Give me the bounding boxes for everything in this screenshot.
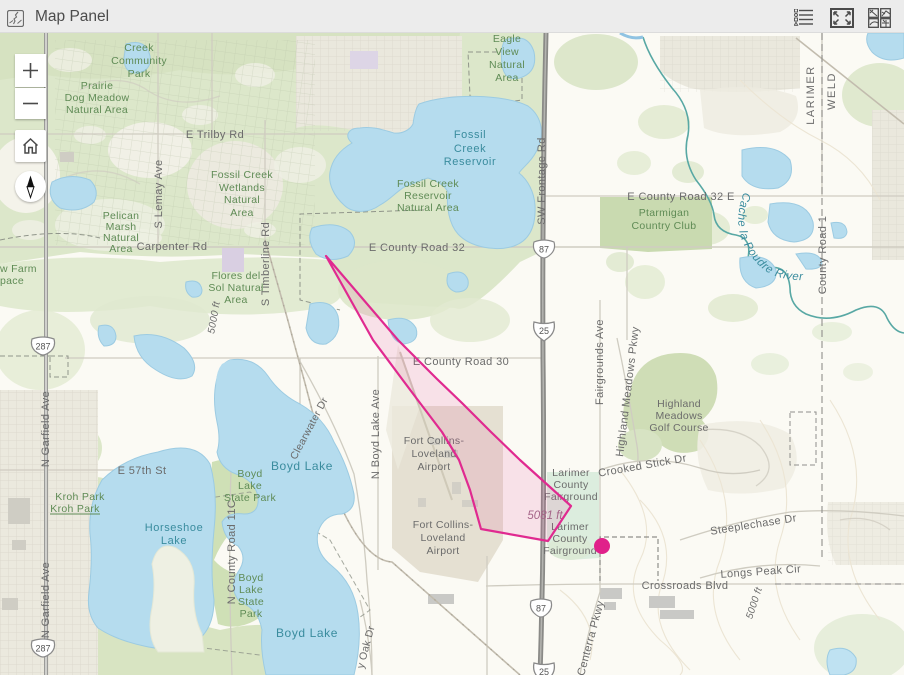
svg-text:Carpenter Rd: Carpenter Rd [137, 241, 208, 253]
svg-text:SW Frontage Rd: SW Frontage Rd [536, 137, 548, 225]
svg-text:Area: Area [230, 207, 253, 219]
svg-text:Area: Area [224, 294, 247, 306]
svg-text:Boyd Lake: Boyd Lake [271, 459, 333, 473]
svg-text:Fossil Creek: Fossil Creek [211, 169, 273, 181]
svg-text:Fairgrounds Ave: Fairgrounds Ave [594, 319, 606, 405]
svg-text:State: State [238, 596, 264, 608]
svg-text:Flores del: Flores del [211, 270, 260, 282]
svg-text:Park: Park [240, 608, 263, 620]
svg-text:Country Club: Country Club [632, 220, 697, 232]
svg-text:87: 87 [539, 245, 549, 255]
svg-text:pace: pace [0, 275, 24, 287]
svg-text:Reservoir: Reservoir [404, 190, 452, 202]
svg-text:View: View [495, 46, 519, 58]
svg-text:w Farm: w Farm [0, 263, 37, 275]
svg-text:Meadows: Meadows [655, 410, 702, 422]
svg-text:Lake: Lake [161, 535, 187, 547]
svg-text:Creek: Creek [454, 143, 486, 155]
svg-text:N County Road 11C: N County Road 11C [226, 500, 238, 604]
svg-text:Airport: Airport [417, 461, 450, 473]
svg-text:Fossil: Fossil [454, 129, 486, 141]
svg-text:Sol Natural: Sol Natural [208, 282, 263, 294]
svg-text:Lake: Lake [238, 480, 262, 492]
svg-text:Area: Area [109, 243, 132, 255]
svg-text:N Garfield Ave: N Garfield Ave [40, 391, 52, 467]
svg-text:Natural Area: Natural Area [397, 202, 459, 214]
svg-text:Area: Area [495, 72, 518, 84]
svg-text:S Lemay Ave: S Lemay Ave [153, 159, 165, 228]
svg-text:Ptarmigan: Ptarmigan [639, 207, 690, 219]
svg-text:Prairie: Prairie [81, 80, 113, 92]
svg-text:E County Road 32 E: E County Road 32 E [627, 191, 734, 203]
svg-text:Fort Collins-: Fort Collins- [413, 519, 474, 531]
svg-text:Crossroads Blvd: Crossroads Blvd [642, 580, 729, 592]
svg-text:Natural: Natural [224, 194, 260, 206]
svg-text:E Trilby Rd: E Trilby Rd [186, 129, 244, 141]
svg-text:Eagle: Eagle [493, 33, 521, 45]
svg-text:Natural Area: Natural Area [66, 104, 128, 116]
svg-text:Reservoir: Reservoir [444, 156, 496, 168]
svg-text:Boyd Lake: Boyd Lake [276, 626, 338, 640]
svg-text:Park: Park [128, 68, 151, 80]
svg-text:287: 287 [35, 644, 50, 654]
svg-text:N Boyd Lake Ave: N Boyd Lake Ave [370, 389, 382, 479]
svg-text:Fossil Creek: Fossil Creek [397, 178, 459, 190]
svg-text:County: County [552, 533, 588, 545]
svg-text:Boyd: Boyd [238, 572, 263, 584]
svg-text:E County Road 32: E County Road 32 [369, 242, 465, 254]
svg-text:Larimer: Larimer [552, 467, 590, 479]
svg-text:Lake: Lake [239, 584, 263, 596]
svg-text:Wetlands: Wetlands [219, 182, 265, 194]
svg-text:E County Road 30: E County Road 30 [413, 356, 509, 368]
svg-text:LARIMER: LARIMER [805, 65, 817, 124]
svg-text:N Garfield Ave: N Garfield Ave [40, 562, 52, 638]
svg-text:Creek: Creek [124, 42, 154, 54]
svg-text:Kroh Park: Kroh Park [55, 491, 105, 503]
svg-text:Community: Community [111, 55, 167, 67]
svg-text:Airport: Airport [426, 545, 459, 557]
svg-text:Kroh Park: Kroh Park [50, 503, 100, 515]
svg-text:Highland: Highland [657, 398, 701, 410]
svg-text:Loveland: Loveland [411, 448, 456, 460]
svg-text:87: 87 [536, 604, 546, 614]
svg-text:287: 287 [35, 342, 50, 352]
svg-text:E 57th St: E 57th St [118, 465, 167, 477]
svg-text:Natural: Natural [489, 59, 525, 71]
svg-text:25: 25 [539, 667, 549, 675]
svg-text:Golf Course: Golf Course [649, 422, 708, 434]
svg-text:Horseshoe: Horseshoe [145, 522, 204, 534]
svg-text:Boyd: Boyd [237, 468, 262, 480]
svg-text:County: County [553, 479, 589, 491]
svg-text:WELD: WELD [826, 72, 838, 110]
svg-text:Fairground: Fairground [543, 545, 597, 557]
svg-text:County Road 1: County Road 1 [817, 216, 829, 295]
svg-text:Dog Meadow: Dog Meadow [65, 92, 130, 104]
svg-text:Loveland: Loveland [420, 532, 465, 544]
svg-text:25: 25 [539, 326, 549, 336]
